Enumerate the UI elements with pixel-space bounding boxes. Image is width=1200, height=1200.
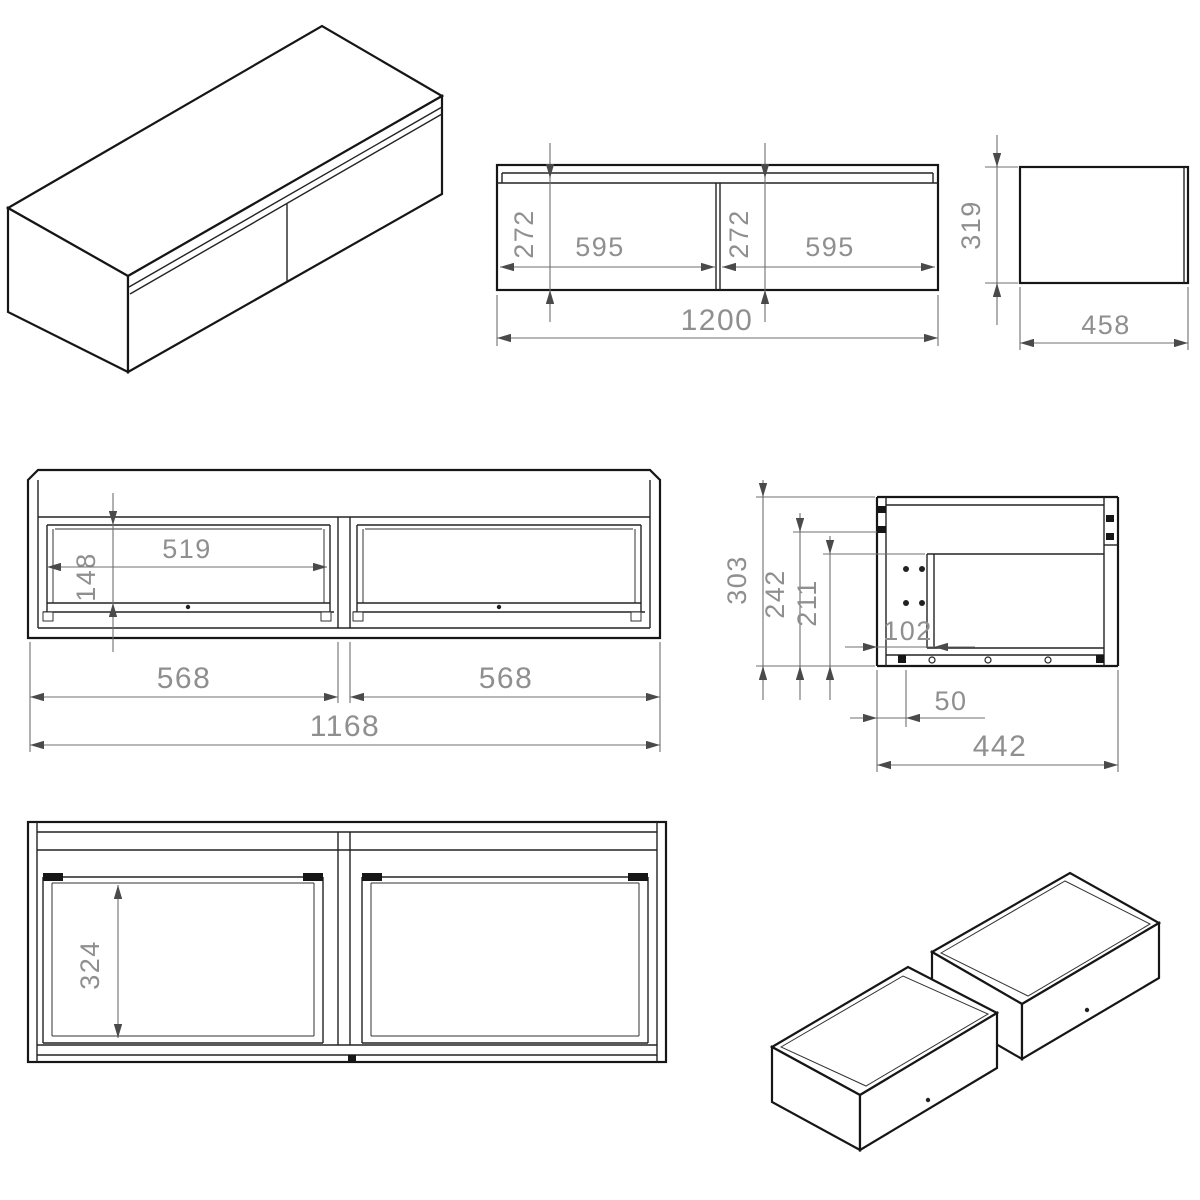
dim-back-offset: 102	[845, 616, 975, 647]
dim-side-depth: 458	[1020, 287, 1188, 350]
dim-front-total-width: 1200	[497, 295, 938, 346]
plan-right-drawer	[362, 873, 648, 1043]
carcass-outline	[28, 470, 660, 638]
dim-text-568-right: 568	[479, 662, 534, 695]
dim-text-519: 519	[162, 534, 212, 564]
dim-text-319: 319	[956, 200, 986, 250]
dim-text-1200: 1200	[681, 304, 754, 337]
dim-bottom-offset: 50	[850, 670, 985, 727]
drawer-box-left	[772, 967, 997, 1150]
plan-outline	[28, 822, 666, 1062]
dim-text-1168: 1168	[310, 710, 381, 743]
dim-carcass-opening-left: 568	[30, 642, 338, 752]
right-drawer-opening	[353, 525, 645, 621]
dim-text-303: 303	[722, 555, 752, 605]
dim-plan-inner-depth: 324	[75, 885, 118, 1038]
carcass-front-view: 148 519 568 568 1168	[28, 470, 660, 752]
dim-text-595-right: 595	[805, 232, 855, 262]
dim-text-211: 211	[792, 579, 822, 627]
technical-drawing-page: 272 595 272 595 1200	[0, 0, 1200, 1200]
dim-text-568-left: 568	[157, 662, 212, 695]
plan-view: 324	[28, 822, 666, 1062]
dim-text-102: 102	[883, 616, 933, 646]
dim-text-272-right: 272	[724, 209, 754, 259]
iso-cabinet-view	[8, 26, 442, 372]
drawing-canvas: 272 595 272 595 1200	[0, 0, 1200, 1200]
drawers-iso-view	[772, 873, 1159, 1150]
carcass-side-view: 303 242 211 102 50	[722, 480, 1118, 772]
dim-text-50: 50	[934, 686, 967, 716]
dim-text-458: 458	[1081, 310, 1131, 340]
side-view: 319 458	[956, 135, 1188, 350]
dim-text-148: 148	[71, 552, 101, 602]
dim-carcass-depth: 442	[877, 670, 1118, 772]
dim-text-242: 242	[760, 569, 790, 619]
dim-front-drawer-height-right: 272	[724, 143, 765, 322]
dim-front-drawer-height-left: 272	[509, 143, 550, 322]
dim-text-442: 442	[973, 730, 1028, 763]
dim-side-height: 319	[956, 135, 1018, 325]
dim-carcass-inner-width: 1168	[30, 710, 660, 745]
dim-text-324: 324	[75, 940, 105, 990]
side-outline	[1020, 167, 1188, 283]
front-outline	[497, 165, 938, 290]
dim-carcass-opening-right: 568	[350, 642, 660, 752]
dim-text-595-left: 595	[575, 232, 625, 262]
front-view: 272 595 272 595 1200	[497, 143, 938, 346]
dim-text-272-left: 272	[509, 209, 539, 259]
drawer-section	[927, 554, 1104, 648]
